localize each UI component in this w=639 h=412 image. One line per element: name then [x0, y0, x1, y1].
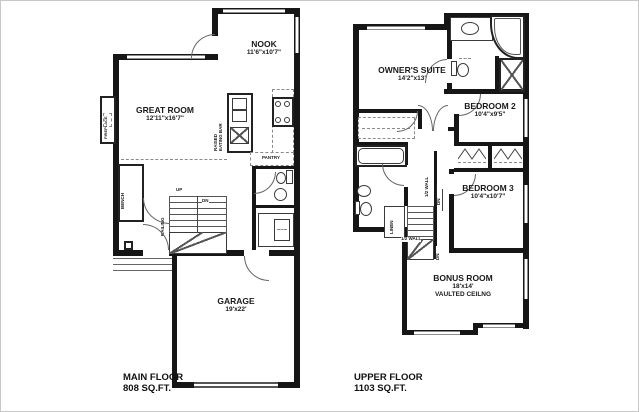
wall	[449, 248, 529, 253]
stair-treads	[407, 206, 434, 239]
toilet-icon	[276, 172, 286, 184]
room-label-bedroom-3: BEDROOM 3 10'4"x10'7"	[462, 183, 513, 201]
door-swing	[191, 34, 215, 58]
fireplace-label: FIREPLACE	[104, 101, 108, 139]
sink-icon	[232, 110, 247, 122]
bathtub-inner	[358, 148, 404, 164]
caption-title: UPPER FLOOR	[354, 372, 423, 383]
window	[524, 259, 528, 299]
stair-arrow	[442, 189, 443, 211]
window	[483, 324, 515, 328]
door-swing	[143, 198, 170, 224]
wall	[252, 166, 294, 169]
raised-eating-bar-label: RAISED EATING BAR	[214, 97, 224, 151]
caption-area: 1103 SQ.FT.	[354, 383, 423, 394]
toilet-tank-icon	[286, 170, 293, 184]
toilet-icon	[360, 202, 372, 216]
up-label: UP	[176, 188, 182, 193]
stair-treads	[169, 196, 227, 232]
shower-icon	[499, 58, 525, 92]
stair-divider	[197, 196, 198, 232]
sink-icon	[232, 98, 247, 110]
room-name: NOOK	[247, 39, 281, 49]
room-name: BONUS ROOM	[433, 273, 493, 283]
half-wall-label: 1/2 WALL	[401, 237, 421, 242]
upper-floor-caption: UPPER FLOOR 1103 SQ.FT.	[354, 372, 423, 394]
window	[414, 331, 460, 335]
room-dims: 14'2"x13'	[378, 75, 446, 83]
room-dims: 10'4"x9'5"	[464, 111, 515, 119]
window	[223, 9, 285, 13]
room-label-bedroom-2: BEDROOM 2 10'4"x9'5"	[464, 101, 515, 119]
linen-label: LINEN	[390, 210, 395, 234]
water-heater-icon	[274, 219, 290, 241]
sink-icon	[461, 22, 479, 35]
room-note: VAULTED CEILNG	[433, 291, 493, 299]
window	[524, 185, 528, 223]
wall	[212, 8, 218, 36]
floor-plan-image: FIREPLACE RAISED EATING BAR PANTRY	[0, 0, 639, 412]
room-label-great-room: GREAT ROOM 12'11"x16'7"	[136, 105, 194, 123]
burner-icon	[284, 101, 290, 107]
burner-icon	[275, 101, 281, 107]
room-label-garage: GARAGE 19'x22'	[217, 296, 254, 314]
dn-label: DN	[202, 199, 209, 204]
double-door-swing	[418, 105, 433, 131]
double-door-swing	[433, 105, 448, 131]
closet-rod	[494, 162, 522, 163]
bifold-door-icon	[494, 148, 522, 160]
eating-bar-label: EATING BAR	[219, 97, 224, 151]
sink-icon	[274, 188, 287, 201]
winder-line	[407, 239, 423, 260]
burner-icon	[275, 117, 281, 123]
fixture-line	[459, 58, 471, 59]
dn-label: DN	[436, 246, 441, 260]
caption-area: 808 SQ.FT.	[123, 383, 183, 394]
wall	[488, 142, 492, 172]
room-name: OWNER'S SUITE	[378, 65, 446, 75]
room-name: GREAT ROOM	[136, 105, 194, 115]
wall	[294, 8, 300, 388]
window	[524, 99, 528, 137]
garage-door	[194, 382, 278, 388]
room-dims: 10'4"x10'7"	[462, 193, 513, 201]
door-swing	[382, 164, 404, 186]
wall	[252, 208, 256, 250]
winder-line	[169, 232, 203, 254]
main-floor-caption: MAIN FLOOR 808 SQ.FT.	[123, 372, 183, 394]
toilet-icon	[457, 63, 469, 77]
dishwasher-icon	[230, 127, 249, 144]
bench-label: BENCH	[121, 179, 126, 209]
room-dims: 12'11"x16'7"	[136, 115, 194, 123]
burner-icon	[284, 117, 290, 123]
room-dims: 18'x14'	[433, 283, 493, 291]
room-label-owners-suite: OWNER'S SUITE 14'2"x13'	[378, 65, 446, 83]
half-wall-label: 1/2 WALL	[425, 167, 430, 197]
caption-title: MAIN FLOOR	[123, 372, 183, 383]
room-name: BEDROOM 2	[464, 101, 515, 111]
door-swing	[254, 172, 276, 194]
room-name: GARAGE	[217, 296, 254, 306]
room-dims: 19'x22'	[217, 306, 254, 314]
wall	[172, 250, 177, 388]
door-opening	[143, 250, 169, 256]
wall	[113, 54, 119, 256]
garage-entry-door-swing	[244, 256, 269, 281]
wall	[448, 127, 456, 131]
closet-rod	[458, 162, 486, 163]
sink-icon	[357, 185, 371, 197]
half-wall	[434, 151, 437, 259]
wall	[278, 382, 300, 388]
fixture-line	[277, 229, 287, 230]
wall	[404, 187, 408, 206]
room-name: BEDROOM 3	[462, 183, 513, 193]
porch-steps	[113, 258, 172, 272]
window	[295, 17, 299, 53]
wall	[252, 205, 294, 208]
room-label-nook: NOOK 11'6"x10'7"	[247, 39, 281, 57]
window	[367, 26, 425, 30]
wall	[449, 194, 454, 248]
bifold-door-icon	[458, 148, 486, 160]
porch-post	[124, 241, 133, 250]
room-dims: 11'6"x10'7"	[247, 49, 281, 57]
flush-beam-line	[121, 159, 227, 160]
pantry-label: PANTRY	[262, 156, 280, 161]
room-label-bonus-room: BONUS ROOM 18'x14' VAULTED CEILNG	[433, 273, 493, 299]
